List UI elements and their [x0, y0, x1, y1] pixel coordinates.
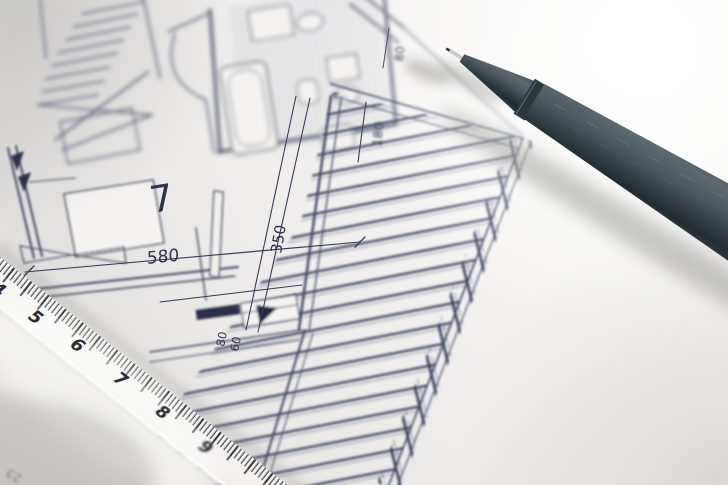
- photo-floor-plan-scene: 7 580 350 180 80 80 60 4 5 6 7 8 9 23: [0, 0, 728, 485]
- vignette-bottom-right: [0, 0, 728, 485]
